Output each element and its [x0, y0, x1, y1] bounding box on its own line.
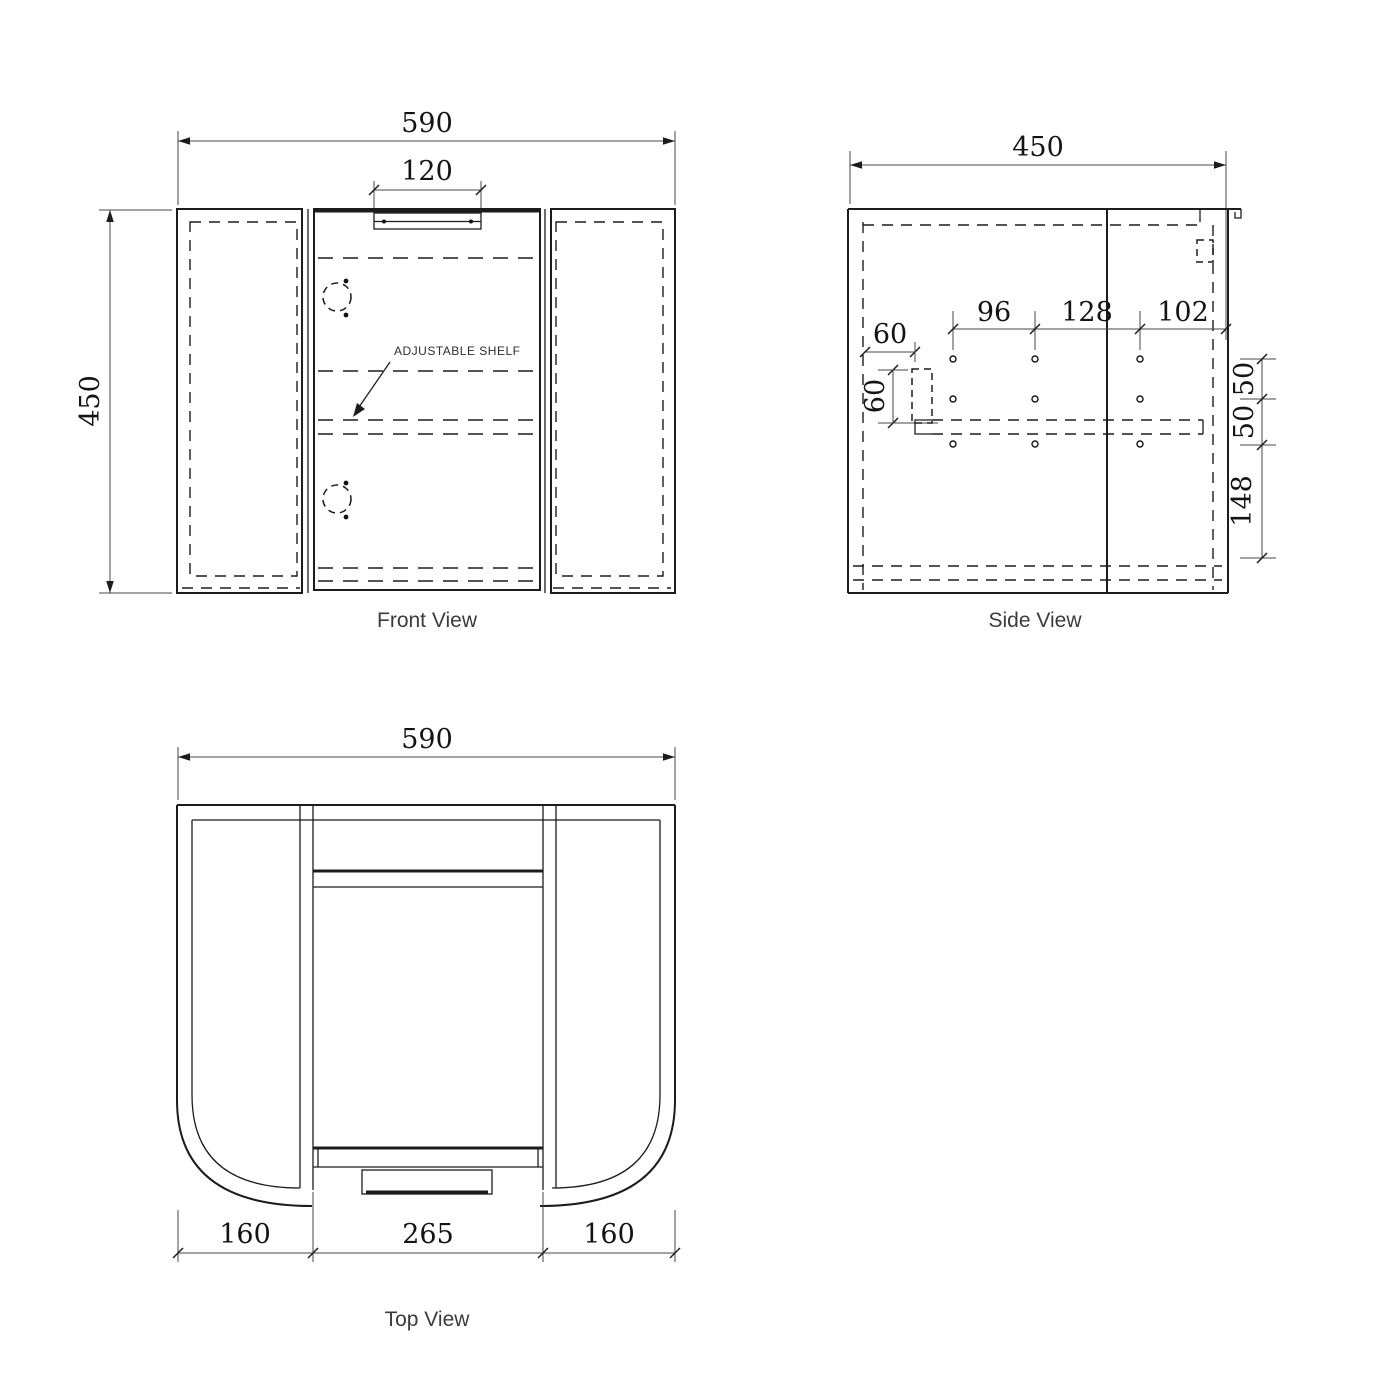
dimension-value: 102 — [1157, 297, 1209, 328]
top-view-title: Top View — [385, 1308, 471, 1331]
dimension-value: 160 — [583, 1219, 635, 1250]
adjustable-shelf-annotation: ADJUSTABLE SHELF — [353, 344, 520, 417]
top-section-dimensions: 160 265 160 — [173, 1192, 680, 1262]
offset-vertical-dimension: 60 — [860, 365, 938, 428]
hanger-bracket-hidden — [1197, 240, 1213, 262]
left-divider-stile — [300, 805, 313, 1190]
dimension-value: 50 — [1229, 362, 1260, 396]
right-wing-inner-wall — [552, 820, 660, 1188]
dimension-value: 120 — [401, 156, 453, 187]
hanging-rail-hidden-lines — [932, 420, 1203, 434]
adjustable-shelf-hidden-lines — [318, 420, 536, 434]
right-wing-outer-wall — [540, 805, 675, 1206]
arrowhead-top — [106, 210, 114, 222]
dimension-value: 96 — [977, 297, 1011, 328]
left-wing-panel — [177, 209, 302, 593]
arrowhead-right — [1214, 161, 1226, 169]
rail-left-bracket — [915, 420, 932, 434]
dimension-value: 450 — [1012, 132, 1064, 163]
bottom-hinge — [323, 481, 351, 520]
door-front-face — [313, 1148, 543, 1167]
bottom-panel-hidden-lines — [318, 568, 536, 581]
handle-body — [362, 1170, 492, 1194]
dimension-value: 160 — [219, 1219, 271, 1250]
pin-hole — [1032, 396, 1038, 402]
door-panel — [314, 209, 540, 590]
front-overall-height-dimension: 450 — [75, 210, 172, 593]
pin-hole — [950, 441, 956, 447]
pin-hole — [1137, 356, 1143, 362]
arrowhead-left — [178, 753, 190, 761]
dimension-value: 60 — [860, 379, 891, 413]
top-overall-width-dimension: 590 — [178, 724, 675, 800]
leader-arrowhead — [353, 403, 365, 417]
hinge-screw — [344, 279, 349, 284]
handle-screw — [382, 220, 386, 224]
pin-hole — [950, 396, 956, 402]
top-hinge — [323, 279, 351, 318]
pin-hole — [1137, 441, 1143, 447]
dimension-value: 128 — [1061, 297, 1113, 328]
right-wing-panel — [551, 209, 675, 593]
right-wing-hidden-edges — [556, 222, 663, 576]
dimension-value: 590 — [401, 724, 453, 755]
door-handle-top — [362, 1170, 492, 1194]
hinge-screw — [344, 313, 349, 318]
leader-line — [357, 362, 390, 410]
hanging-bracket-hidden — [912, 369, 932, 423]
left-wing-hidden-edges — [190, 222, 297, 576]
pin-hole — [1032, 356, 1038, 362]
hole-pitch-dimensions: 96 128 102 — [948, 297, 1231, 350]
wall-hanger-hook — [1235, 209, 1241, 218]
arrowhead-right — [663, 137, 675, 145]
bottom-panel-hidden-lines — [853, 566, 1222, 580]
side-view-drawing: 450 — [848, 132, 1276, 632]
hinge-cup-circle — [323, 283, 351, 311]
dimension-value: 590 — [401, 108, 453, 139]
hinge-screw — [344, 515, 349, 520]
arrowhead-bottom — [106, 581, 114, 593]
dimension-value: 450 — [75, 375, 106, 427]
cabinet-drawing-canvas: 590 120 450 — [0, 0, 1400, 1400]
right-divider-stile — [543, 805, 556, 1190]
front-handle-width-dimension: 120 — [369, 156, 486, 208]
arrowhead-right — [663, 753, 675, 761]
left-wing-inner-wall — [192, 820, 300, 1188]
dimension-value: 60 — [873, 319, 907, 350]
top-view-drawing: 590 160 265 — [173, 724, 680, 1331]
door-handle — [374, 213, 481, 229]
handle-screw — [469, 220, 473, 224]
technical-drawing-page: 590 120 450 — [0, 0, 1400, 1400]
side-view-title: Side View — [988, 609, 1082, 632]
shelf-note-text: ADJUSTABLE SHELF — [394, 344, 520, 358]
hinge-cup-circle — [323, 485, 351, 513]
pin-hole — [950, 356, 956, 362]
pin-hole — [1137, 396, 1143, 402]
arrowhead-left — [850, 161, 862, 169]
dimension-value: 50 — [1229, 405, 1260, 439]
hole-row-spacing-dimensions: 50 50 148 — [1227, 354, 1276, 563]
dimension-value: 148 — [1227, 475, 1258, 527]
front-view-title: Front View — [377, 609, 478, 632]
pin-hole — [1032, 441, 1038, 447]
front-view-drawing: 590 120 450 — [75, 108, 675, 632]
left-wing-outer-wall — [177, 805, 312, 1206]
arrowhead-left — [178, 137, 190, 145]
dimension-value: 265 — [402, 1219, 454, 1250]
offset-horizontal-dimension: 60 — [860, 319, 920, 362]
hinge-screw — [344, 481, 349, 486]
